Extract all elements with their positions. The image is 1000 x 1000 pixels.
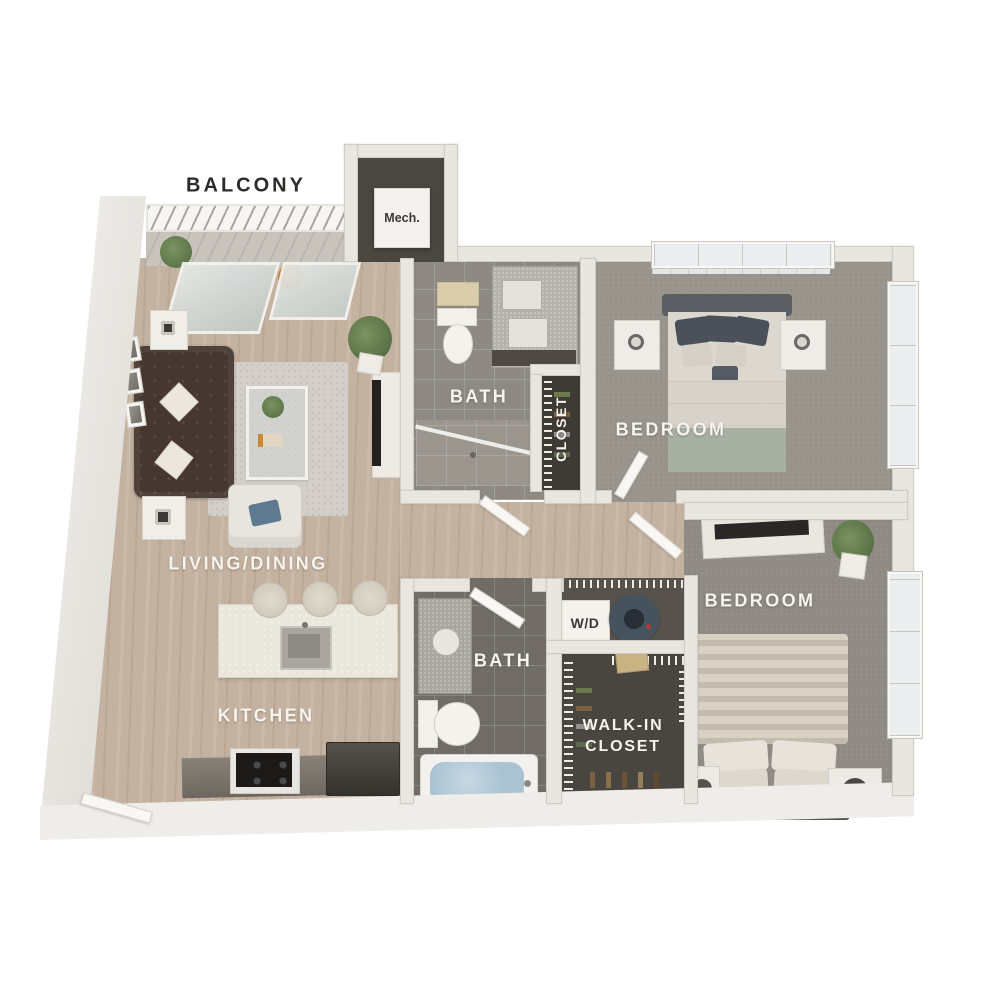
nightstand-lamp bbox=[628, 334, 644, 350]
upper-closet-label: CLOSET bbox=[553, 396, 569, 462]
walkin-clothes bbox=[638, 772, 643, 788]
bar-stool bbox=[352, 580, 388, 616]
walkin-clothes bbox=[606, 772, 611, 788]
sliding-glass-door-pane bbox=[269, 262, 361, 320]
lower-toilet-bowl bbox=[434, 702, 480, 746]
upper-bedroom-window-top bbox=[652, 242, 834, 268]
mech-unit: Mech. bbox=[374, 188, 430, 248]
lower-bath-sink bbox=[432, 628, 460, 656]
upper-bath-left-wall bbox=[400, 258, 414, 504]
lower-bath-label: BATH bbox=[474, 651, 532, 672]
washer-indicator bbox=[646, 624, 651, 629]
lower-bedroom-planter bbox=[838, 552, 867, 579]
tv bbox=[714, 520, 809, 540]
floor-plan: W/D Mech. bbox=[0, 0, 1000, 1000]
lower-bedroom-top-wall bbox=[684, 502, 908, 520]
island-faucet bbox=[302, 622, 308, 628]
coffee-table-book bbox=[258, 434, 283, 447]
balcony-label: BALCONY bbox=[186, 175, 306, 198]
lower-bed-knit-blanket bbox=[692, 634, 848, 744]
upper-bedroom-window-right bbox=[888, 282, 918, 468]
upper-bath-sink bbox=[502, 280, 542, 310]
upper-bedroom-label: BEDROOM bbox=[616, 420, 727, 441]
lower-bath-right-wall bbox=[546, 578, 562, 804]
mech-label: Mech. bbox=[384, 211, 419, 225]
upper-bath-label: BATH bbox=[450, 387, 508, 408]
lower-bedroom-left-wall bbox=[684, 575, 698, 804]
cooktop bbox=[236, 753, 292, 787]
bed-pillow-light bbox=[681, 343, 713, 368]
shower-drain bbox=[470, 452, 476, 458]
bed-pillow-light bbox=[715, 342, 747, 367]
coffee-table-plant bbox=[262, 396, 284, 418]
mech-closet-wall bbox=[344, 144, 458, 158]
living-dining-label: LIVING/DINING bbox=[168, 554, 327, 575]
bed-pillow-dark bbox=[732, 315, 770, 347]
walkin-clothes bbox=[654, 772, 659, 788]
refrigerator bbox=[326, 742, 400, 796]
washer bbox=[609, 594, 659, 644]
lower-bedroom-label: BEDROOM bbox=[705, 591, 816, 612]
walkin-closet-label-line1: WALK-IN bbox=[582, 716, 663, 737]
walkin-clothes bbox=[622, 772, 627, 788]
upper-bath-bottom-wall bbox=[544, 490, 612, 504]
wd-walkin-divider-wall bbox=[546, 640, 698, 654]
wd-wire-shelf bbox=[562, 580, 688, 588]
closet-bedroom-wall bbox=[580, 258, 596, 504]
island-sink-basin bbox=[288, 634, 320, 658]
tv bbox=[372, 380, 381, 466]
walkin-closet-label: WALK-IN CLOSET bbox=[582, 716, 663, 758]
upper-toilet-bowl bbox=[443, 324, 473, 364]
walkin-clothes bbox=[576, 706, 592, 711]
mech-closet-wall bbox=[444, 144, 458, 262]
table-lamp bbox=[161, 321, 175, 335]
lower-bath-left-wall bbox=[400, 578, 414, 804]
bar-stool bbox=[252, 582, 288, 618]
walkin-wire-shelf-left bbox=[564, 658, 573, 790]
balcony-railing bbox=[146, 204, 350, 232]
upper-bath-sink bbox=[508, 318, 548, 348]
walkin-clothes bbox=[576, 688, 592, 693]
mech-closet-wall bbox=[344, 144, 358, 262]
bar-stool bbox=[302, 581, 338, 617]
sofa bbox=[134, 346, 234, 498]
bath-closet-partition bbox=[530, 374, 542, 492]
nightstand-lamp bbox=[794, 334, 810, 350]
upper-bath-bottom-wall bbox=[400, 490, 480, 504]
walkin-clothes bbox=[590, 772, 595, 788]
table-lamp bbox=[155, 509, 171, 525]
lower-bedroom-window-right bbox=[888, 572, 922, 738]
bathtub-faucet bbox=[524, 780, 531, 787]
washer-dryer-label: W/D bbox=[571, 615, 600, 631]
towel-bar bbox=[437, 282, 479, 306]
kitchen-label: KITCHEN bbox=[218, 706, 315, 727]
wall-art-frame bbox=[124, 401, 146, 428]
living-planter bbox=[356, 352, 383, 376]
closet-wire-shelf bbox=[544, 378, 552, 488]
walkin-closet-label-line2: CLOSET bbox=[582, 737, 663, 758]
